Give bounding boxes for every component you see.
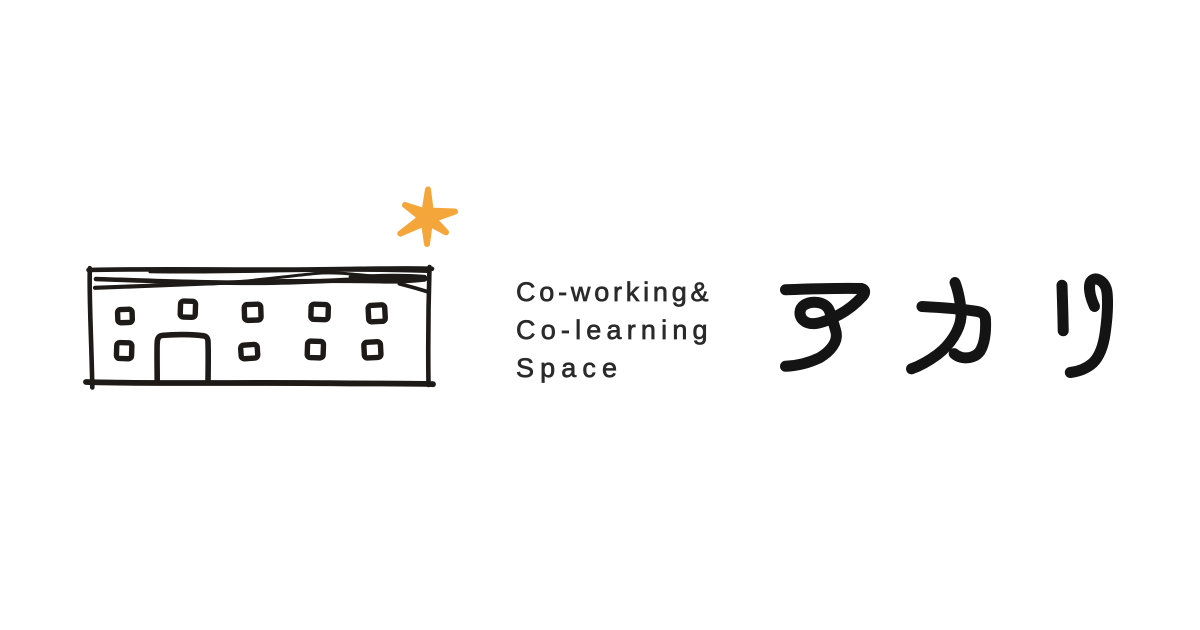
svg-text:Co-learning: Co-learning xyxy=(516,315,713,345)
svg-text:Co-working&: Co-working& xyxy=(516,277,712,307)
svg-text:Space: Space xyxy=(516,353,623,383)
